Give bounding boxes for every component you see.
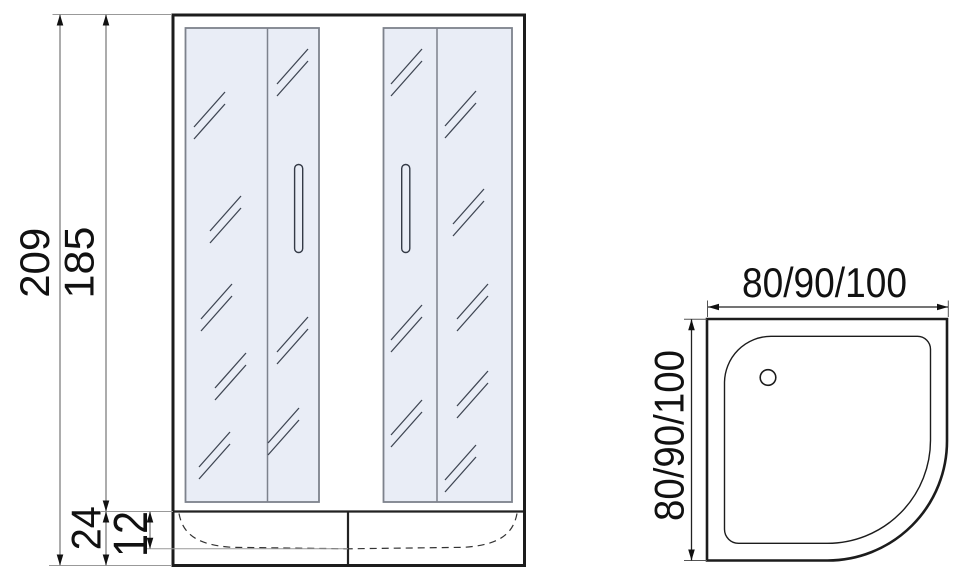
svg-text:80/90/100: 80/90/100 xyxy=(646,350,693,521)
svg-text:185: 185 xyxy=(56,227,103,299)
svg-text:12: 12 xyxy=(105,511,158,557)
svg-text:80/90/100: 80/90/100 xyxy=(742,259,907,306)
svg-text:24: 24 xyxy=(63,506,110,550)
svg-text:209: 209 xyxy=(11,228,58,298)
